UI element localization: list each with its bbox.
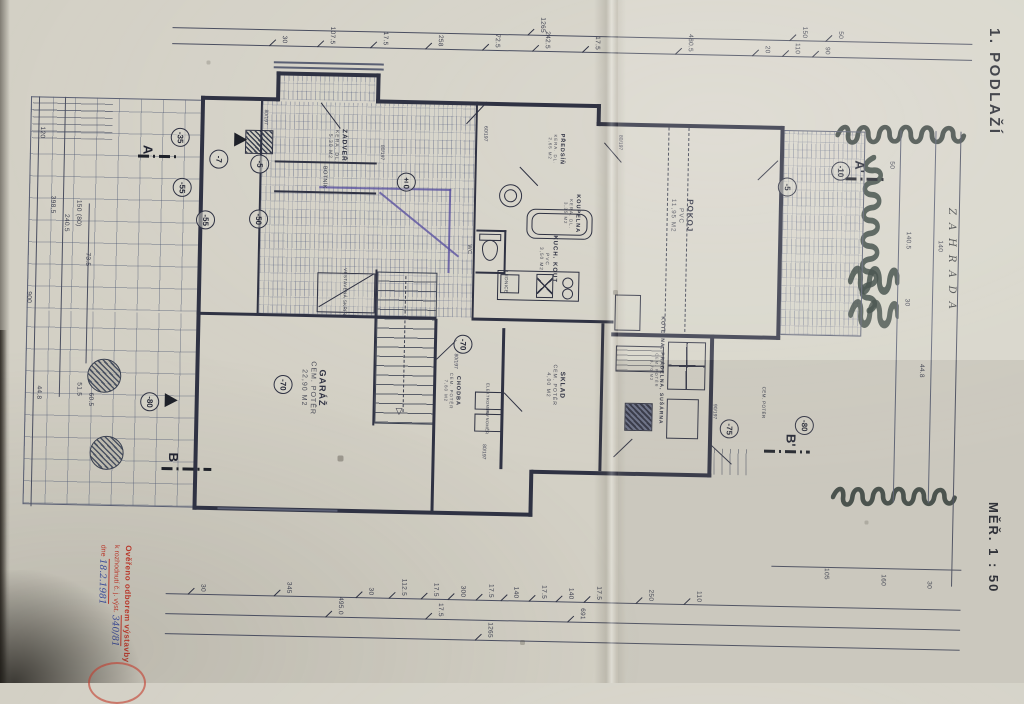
room-label-part: KERA. DL. <box>568 194 574 233</box>
room-label-part: 7,80 M2 <box>443 373 449 410</box>
stair-arrow-icon: ▽ <box>395 406 402 417</box>
room-label-part: PVC <box>544 235 551 283</box>
room-label-part: CEM. POTĚR <box>307 361 317 415</box>
red-stamp-ellipse <box>88 662 146 704</box>
left-scan-edge-dark <box>0 330 7 683</box>
room-label-garaz: GARÁŽCEM. POTĚR22,90 M2 <box>298 361 328 415</box>
door-swing <box>757 160 778 180</box>
stamp-line3: dne 18.2.1981 <box>93 545 109 663</box>
door-size-label: 80/197 <box>617 135 623 150</box>
dimension-value: 44.8 <box>35 385 42 399</box>
stamp-line2-text: k rozhodnutí č. j. výst. <box>112 545 120 613</box>
approval-stamp: Ověřeno odborem výstavby k rozhodnutí č.… <box>93 545 134 663</box>
wall <box>276 71 281 101</box>
dimension-value: 30 <box>925 581 932 589</box>
paper-stains <box>0 0 1 1</box>
dimension-value: 17.5 <box>432 583 439 597</box>
room-label-kotelna: KOTELNA, PRÁDELNA, SUŠÁRNACEM. POTĚR9,70… <box>647 316 665 425</box>
door-size-label: 60/197 <box>482 126 488 141</box>
thin-line <box>928 131 937 503</box>
dimension-value: 300 <box>459 586 466 598</box>
wall <box>528 470 533 517</box>
fixture-label: VESTAVĚNÁ SKŘÍŇ <box>342 268 348 315</box>
door-swing <box>503 392 522 412</box>
dimension-line <box>172 43 972 61</box>
room-label-part: CHODBA <box>454 373 462 410</box>
hedge-scribble <box>831 481 967 510</box>
floor-title: 1. PODLAŽÍ <box>986 28 1003 136</box>
hedge-scribble <box>835 119 976 148</box>
level-marker: -7 <box>209 149 228 168</box>
dimension-value: 30 <box>903 299 910 307</box>
room-label-part: KERA. DL. <box>333 129 340 165</box>
dimension-value: 17.5 <box>594 36 601 50</box>
left-scan-edge <box>0 0 10 683</box>
toilet-bowl <box>482 240 498 261</box>
door-swing <box>519 167 538 187</box>
dimension-value: 250 <box>647 589 654 601</box>
room-label-part: 3,35 M2 <box>563 194 569 233</box>
wall <box>597 122 785 130</box>
dimension-value: 160 <box>880 574 887 586</box>
level-marker: -75 <box>720 419 739 438</box>
level-marker: -70 <box>273 375 292 394</box>
dimension-value: 30 <box>367 588 374 596</box>
room-label-part: PVC <box>676 199 684 233</box>
wall <box>531 470 711 478</box>
room-label-part: CEM. POTĚR <box>448 373 454 410</box>
pokoj-wardrobe <box>614 294 641 331</box>
fixture-label: BOTNÍK <box>321 166 327 189</box>
room-label-part: KUCH. KOUT <box>549 235 557 283</box>
door-size-label: 80/197 <box>379 145 385 160</box>
room-label-part: KERA. DL. <box>552 133 558 165</box>
level-marker: -80 <box>795 416 814 435</box>
dimension-value: 398.5 <box>49 196 56 214</box>
section-letter-b: B <box>166 452 181 462</box>
door-size-label: 80/197 <box>452 353 458 368</box>
door-swing <box>613 439 633 458</box>
dimension-value: 242.5 <box>544 31 551 49</box>
dimension-value: 30 <box>199 584 206 592</box>
wall <box>475 272 505 275</box>
room-label-part: SKLAD <box>557 365 566 407</box>
dimension-line <box>771 566 961 571</box>
dimension-value: 900 <box>25 291 32 303</box>
room-label-part: 4,00 M2 <box>544 364 551 406</box>
dimension-value: 30 <box>281 36 288 44</box>
door-size-label: 90/197 <box>711 404 717 419</box>
room-label-part: GARÁŽ <box>316 361 328 415</box>
stamp-date: 18.2.1981 <box>96 558 109 604</box>
dimension-line <box>173 27 973 45</box>
dimension-value: 150 (80) <box>75 200 83 227</box>
water-heater <box>666 399 699 440</box>
dimension-line <box>165 633 960 651</box>
entry-arrow-icon <box>234 132 247 146</box>
dimension-value: 51.5 <box>75 382 82 396</box>
room-label-part: 3,50 M2 <box>538 235 545 283</box>
wall <box>499 328 505 469</box>
room-label-part: 2,65 M2 <box>547 133 553 165</box>
dimension-value: 1265 <box>539 17 546 33</box>
yard-paving-lower <box>23 310 197 507</box>
wall <box>476 230 506 233</box>
stamp-line1: Ověřeno odborem výstavby <box>120 545 134 663</box>
room-label-zadveri: ZÁDVEŘÍKERA. DL.5,30 M2 <box>326 129 348 165</box>
dimension-value: 17.5 <box>487 584 494 598</box>
dimension-value: 17.5 <box>540 585 547 599</box>
section-letter-a: A <box>140 145 155 155</box>
dimension-line <box>165 613 960 631</box>
dimension-value: 495.0 <box>337 597 344 615</box>
door-size-label: 80/197 <box>481 444 487 459</box>
room-label-predsin: PŘEDSÍŇKERA. DL.2,65 M2 <box>547 133 565 165</box>
dimension-line <box>951 132 962 587</box>
level-marker: -70 <box>453 335 472 354</box>
stamp-date-prefix: dne <box>99 545 106 557</box>
dimension-value: 345 <box>285 582 292 594</box>
section-cut-line <box>764 450 810 454</box>
dimension-value: 1265 <box>486 622 493 638</box>
section-letter-ap: A' <box>852 160 867 173</box>
wall <box>598 323 604 471</box>
room-label-part: POKOJ <box>684 199 695 233</box>
dimension-value: 140 <box>512 587 519 599</box>
vestibule-floor-hatch <box>279 75 375 101</box>
room-label-chodba: CHODBACEM. POTĚR7,80 M2 <box>443 373 461 410</box>
room-label-part: PŘEDSÍŇ <box>558 134 566 166</box>
dimension-value: 72.5 <box>494 34 501 48</box>
section-letter-bp: B' <box>783 434 798 447</box>
dimension-value: 50 <box>888 161 895 169</box>
room-label-part: 5,30 M2 <box>326 129 333 165</box>
room-label-part: KOUPELNA <box>573 194 581 233</box>
wall <box>201 96 279 102</box>
fixture-label: PLYNOMĚR <box>485 409 491 434</box>
fixture-label: LEDNICE <box>504 271 509 293</box>
scale-label: MĚŘ. 1 : 50 <box>986 502 1001 593</box>
dimension-value: 150 <box>801 27 808 39</box>
door-size-label: 80/197 <box>263 109 269 124</box>
dimension-value: 105 <box>823 568 830 580</box>
dimension-value: 140 <box>937 240 944 252</box>
room-label-koupelna: KOUPELNAKERA. DL.3,35 M2 <box>563 194 581 233</box>
dimension-value: 140.5 <box>905 232 912 250</box>
fixture-label: WC <box>466 244 472 254</box>
level-marker: -55 <box>196 210 215 229</box>
dimension-value: 17.5 <box>382 32 389 46</box>
room-label-part: ZÁDVEŘÍ <box>339 129 348 165</box>
dimension-value: 240.5 <box>63 214 70 232</box>
hedge-scribble <box>846 259 899 330</box>
boiler-equipment <box>667 342 706 391</box>
garden-label: ZAHRADA <box>946 208 957 317</box>
dimension-value: 258 <box>437 35 444 47</box>
dimension-value: 20 <box>764 46 771 54</box>
stamp-number: 340/81 <box>109 615 122 647</box>
floorplan-drawing: ▽ ZÁDVEŘÍKERA. DL.5,30 M2PŘEDSÍŇKERA. DL… <box>10 52 982 632</box>
dimension-value: 17.5 <box>437 603 444 617</box>
dimension-value: 50 <box>837 31 844 39</box>
entry-arrow-icon <box>165 393 178 407</box>
dimension-value: 107.5 <box>329 27 336 45</box>
room-label-part: 11,95 M2 <box>669 199 677 233</box>
dimension-value: 480.5 <box>687 34 694 52</box>
dimension-value: 17.5 <box>595 586 602 600</box>
room-label-kuch-kout: KUCH. KOUTPVC3,50 M2 <box>538 235 558 283</box>
dimension-value: 60.5 <box>87 393 94 407</box>
room-label-sklad: SKLADCEM. POTĚR4,00 M2 <box>544 364 566 406</box>
dimension-value: 90 <box>824 47 831 55</box>
dimension-value: 112.5 <box>400 579 407 596</box>
dimension-value: 110 <box>695 591 702 602</box>
wall <box>611 332 780 340</box>
dimension-value: 140 <box>567 588 574 600</box>
thin-line <box>274 61 384 65</box>
dimension-value: 110 <box>794 43 801 54</box>
dimension-value: 73.5 <box>84 252 91 266</box>
room-label-part: 22,90 M2 <box>298 361 308 415</box>
wall <box>471 317 613 323</box>
wall <box>503 230 506 274</box>
thin-line <box>274 66 384 70</box>
fixture-label: CEM. POTĚR <box>761 387 767 419</box>
dimension-value: 44.8 <box>918 364 925 378</box>
scanned-floorplan-page: { "document": { "floor_title": "1. PODLA… <box>0 0 1024 683</box>
dimension-value: 120 <box>39 126 46 138</box>
dimension-value: 691 <box>579 608 586 620</box>
room-label-pokoj: POKOJPVC11,95 M2 <box>669 199 695 233</box>
room-label-part: CEM. POTĚR <box>551 364 558 406</box>
